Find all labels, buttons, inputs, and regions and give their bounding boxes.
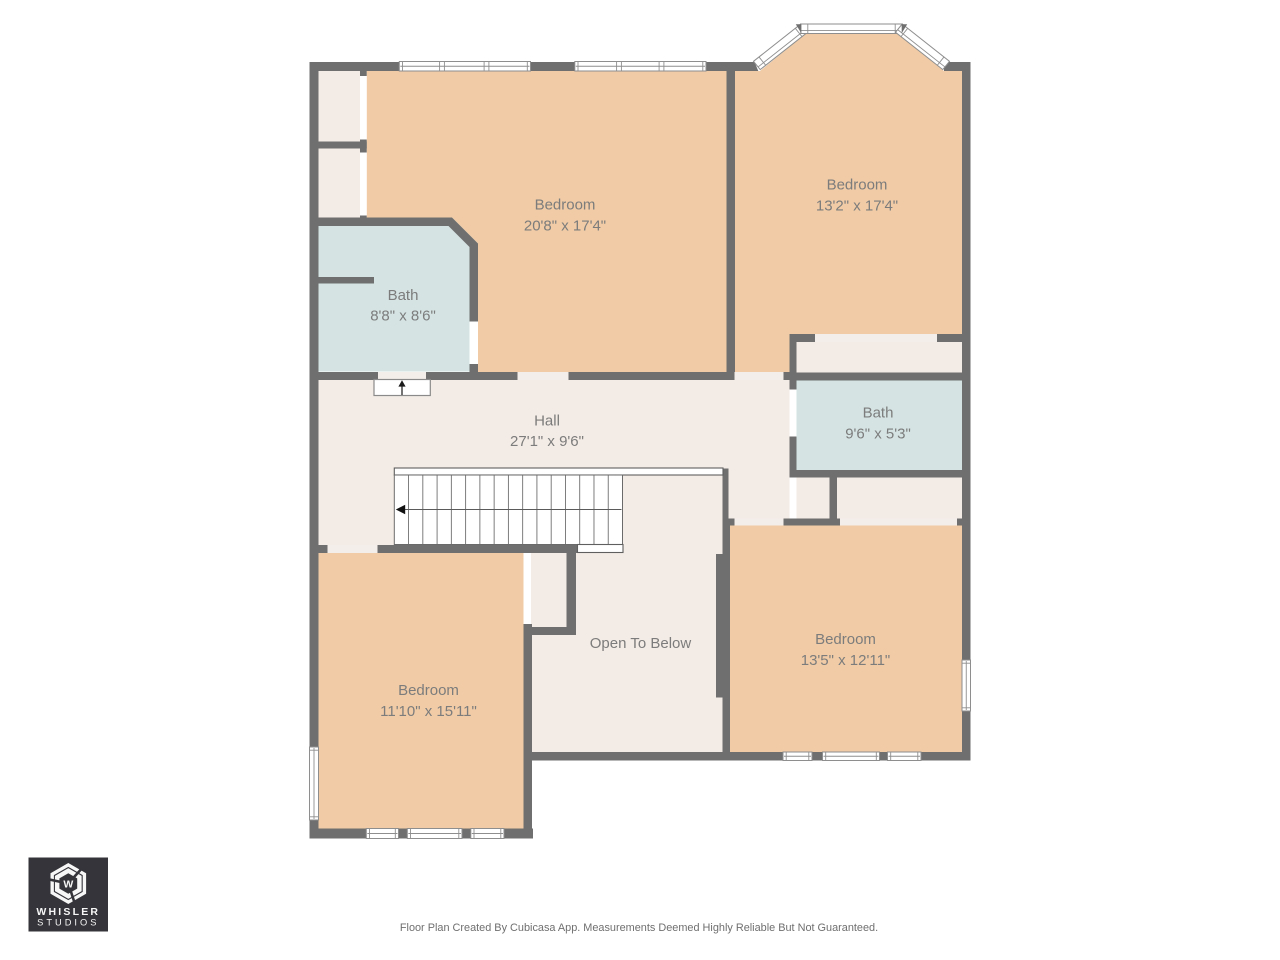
svg-text:9'6" x 5'3": 9'6" x 5'3" [845,426,911,443]
svg-text:27'1" x 9'6": 27'1" x 9'6" [510,433,584,450]
svg-text:Open To Below: Open To Below [590,635,692,652]
svg-text:Bath: Bath [388,287,419,304]
svg-text:Bath: Bath [863,405,894,422]
svg-text:STUDIOS: STUDIOS [37,918,99,928]
svg-text:11'10" x 15'11": 11'10" x 15'11" [380,703,477,720]
svg-text:Hall: Hall [534,413,560,430]
svg-text:13'5" x 12'11": 13'5" x 12'11" [801,652,891,669]
svg-text:Bedroom: Bedroom [815,631,876,648]
svg-text:8'8" x 8'6": 8'8" x 8'6" [370,308,436,325]
svg-text:W: W [63,878,73,890]
svg-text:Bedroom: Bedroom [535,197,596,214]
svg-text:Bedroom: Bedroom [398,682,459,699]
svg-text:WHISLER: WHISLER [36,906,100,918]
svg-text:13'2" x 17'4": 13'2" x 17'4" [816,198,898,215]
svg-text:Bedroom: Bedroom [827,177,888,194]
svg-text:20'8" x 17'4": 20'8" x 17'4" [524,218,606,235]
svg-text:Floor Plan Created By Cubicasa: Floor Plan Created By Cubicasa App. Meas… [400,922,878,934]
